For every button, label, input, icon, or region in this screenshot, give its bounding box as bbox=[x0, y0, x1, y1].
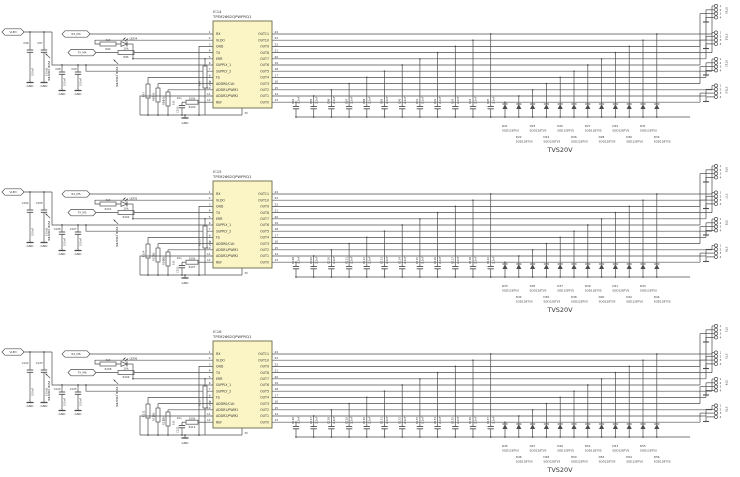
svg-text:C104: C104 bbox=[22, 201, 29, 205]
svg-text:OUT1: OUT1 bbox=[260, 414, 269, 418]
tvs-diodes: D21SOD128TVSD22SOD128TVSD23SOD128TVSD24S… bbox=[502, 33, 671, 154]
err-led-branch: 4k7R108LED6 bbox=[95, 357, 213, 380]
svg-text:4: 4 bbox=[720, 176, 722, 180]
svg-text:2: 2 bbox=[720, 381, 722, 385]
svg-text:4: 4 bbox=[720, 16, 722, 20]
svg-text:OUT7: OUT7 bbox=[260, 217, 269, 221]
svg-text:ERR: ERR bbox=[216, 57, 223, 61]
svg-text:2: 2 bbox=[720, 221, 722, 225]
svg-text:14: 14 bbox=[275, 92, 279, 96]
svg-text:3: 3 bbox=[720, 385, 722, 389]
svg-text:21: 21 bbox=[275, 49, 279, 53]
svg-text:2.2nF: 2.2nF bbox=[474, 256, 478, 264]
svg-text:15: 15 bbox=[275, 86, 279, 90]
svg-text:17: 17 bbox=[275, 73, 279, 77]
svg-text:2.2nF: 2.2nF bbox=[385, 96, 389, 104]
svg-text:OUT8: OUT8 bbox=[260, 51, 269, 55]
svg-text:D22: D22 bbox=[516, 135, 522, 139]
svg-text:C87: C87 bbox=[344, 98, 348, 104]
svg-text:3: 3 bbox=[720, 411, 722, 415]
svg-text:ST9: ST9 bbox=[725, 247, 729, 252]
svg-text:C111: C111 bbox=[344, 257, 348, 264]
svg-text:SOD128TVS: SOD128TVS bbox=[571, 300, 588, 304]
svg-text:25: 25 bbox=[245, 431, 249, 435]
svg-text:4: 4 bbox=[720, 202, 722, 206]
svg-text:GND: GND bbox=[182, 121, 190, 125]
svg-text:D26: D26 bbox=[571, 135, 577, 139]
svg-text:OUT6: OUT6 bbox=[260, 223, 269, 227]
svg-text:SOD128TVS: SOD128TVS bbox=[585, 449, 602, 453]
svg-text:R112: R112 bbox=[152, 414, 156, 421]
svg-text:OUT10: OUT10 bbox=[258, 358, 269, 362]
svg-text:D36: D36 bbox=[543, 295, 549, 299]
svg-text:OUT6: OUT6 bbox=[260, 383, 269, 387]
svg-text:SOD128TVS: SOD128TVS bbox=[612, 129, 629, 133]
svg-text:D56: D56 bbox=[654, 455, 660, 459]
svg-text:R107: R107 bbox=[189, 265, 196, 269]
svg-text:4: 4 bbox=[720, 255, 722, 259]
svg-text:SOD128TVS: SOD128TVS bbox=[502, 289, 519, 293]
svg-text:D43: D43 bbox=[640, 284, 646, 288]
svg-text:C124: C124 bbox=[54, 387, 61, 391]
svg-text:FS: FS bbox=[216, 236, 220, 240]
svg-text:2.2nF: 2.2nF bbox=[297, 96, 301, 104]
svg-text:SOD128TVS: SOD128TVS bbox=[543, 140, 560, 144]
svg-text:23: 23 bbox=[275, 196, 279, 200]
svg-text:OUT6: OUT6 bbox=[260, 63, 269, 67]
svg-text:C121: C121 bbox=[176, 426, 180, 433]
svg-text:3: 3 bbox=[720, 332, 722, 336]
output-bus bbox=[272, 166, 714, 262]
svg-text:C98: C98 bbox=[55, 67, 60, 71]
svg-text:GND: GND bbox=[41, 244, 49, 248]
svg-text:100nF: 100nF bbox=[78, 237, 82, 246]
svg-text:4: 4 bbox=[720, 389, 722, 393]
svg-text:10n: 10n bbox=[177, 96, 182, 100]
svg-text:13: 13 bbox=[275, 98, 279, 102]
svg-text:OUT0: OUT0 bbox=[260, 260, 269, 264]
svg-text:ST13: ST13 bbox=[725, 87, 729, 94]
svg-text:6: 6 bbox=[209, 61, 211, 65]
svg-text:VLDO: VLDO bbox=[216, 38, 225, 42]
svg-text:R113: R113 bbox=[162, 418, 166, 425]
svg-text:SOD128TVS: SOD128TVS bbox=[612, 289, 629, 293]
svg-text:GND: GND bbox=[216, 205, 224, 209]
svg-text:VLDO: VLDO bbox=[216, 358, 225, 362]
svg-text:4k7: 4k7 bbox=[105, 38, 110, 42]
svg-text:C95: C95 bbox=[486, 98, 490, 104]
svg-text:TVS20V: TVS20V bbox=[546, 306, 573, 314]
svg-text:SOD128TVS: SOD128TVS bbox=[654, 140, 671, 144]
svg-text:SOD128TVS: SOD128TVS bbox=[557, 129, 574, 133]
svg-text:D44: D44 bbox=[654, 295, 660, 299]
svg-text:OUT3: OUT3 bbox=[260, 402, 269, 406]
pwr-driver-label-b: PWR_DRIVER bbox=[114, 60, 120, 87]
svg-text:21: 21 bbox=[275, 369, 279, 373]
svg-text:ADDR2/PWM2: ADDR2/PWM2 bbox=[216, 94, 238, 98]
svg-text:19: 19 bbox=[275, 61, 279, 65]
block-IC14: IC14TPS92662QPWPRQ11RX2VLDO3GND4TX5ERR6S… bbox=[2, 4, 729, 154]
svg-text:GND: GND bbox=[27, 244, 35, 248]
svg-text:2: 2 bbox=[720, 194, 722, 198]
svg-text:RX_M5: RX_M5 bbox=[71, 192, 80, 196]
svg-text:100k: 100k bbox=[189, 416, 196, 420]
svg-text:17: 17 bbox=[275, 233, 279, 237]
svg-text:4: 4 bbox=[209, 49, 211, 53]
svg-text:PWR_DRIVER: PWR_DRIVER bbox=[47, 381, 51, 401]
svg-text:D42: D42 bbox=[626, 295, 632, 299]
output-bus bbox=[272, 326, 714, 422]
svg-text:D24: D24 bbox=[543, 135, 549, 139]
svg-text:ERR: ERR bbox=[216, 217, 223, 221]
svg-text:14: 14 bbox=[275, 412, 279, 416]
svg-text:C119: C119 bbox=[486, 257, 490, 264]
svg-text:OUT1: OUT1 bbox=[260, 94, 269, 98]
err-led-branch: 4k7R101LED5 bbox=[95, 197, 213, 220]
block-IC16: IC16TPS92662QPWPRQ11RX2VLDO3GND4TX5ERR6S… bbox=[2, 324, 729, 474]
svg-text:100nF: 100nF bbox=[30, 67, 34, 76]
svg-text:D55: D55 bbox=[640, 444, 646, 448]
svg-text:2.2nF: 2.2nF bbox=[314, 256, 318, 264]
svg-text:D47: D47 bbox=[530, 444, 536, 448]
svg-text:2.2nF: 2.2nF bbox=[332, 416, 336, 424]
svg-text:4: 4 bbox=[720, 42, 722, 46]
svg-text:2.2nF: 2.2nF bbox=[367, 416, 371, 424]
svg-text:2: 2 bbox=[209, 36, 211, 40]
svg-text:7: 7 bbox=[209, 227, 211, 231]
svg-text:C117: C117 bbox=[451, 257, 455, 264]
svg-text:2.2nF: 2.2nF bbox=[474, 96, 478, 104]
ic-symbol: IC16TPS92662QPWPRQ11RX2VLDO3GND4TX5ERR6S… bbox=[207, 329, 278, 435]
svg-text:21: 21 bbox=[275, 209, 279, 213]
svg-text:OUT10: OUT10 bbox=[258, 38, 269, 42]
svg-text:PWR_DRIVER: PWR_DRIVER bbox=[47, 61, 51, 81]
svg-text:SOD128TVS: SOD128TVS bbox=[530, 449, 547, 453]
svg-text:4k7: 4k7 bbox=[105, 358, 110, 362]
svg-text:PWR_DRIVER: PWR_DRIVER bbox=[115, 67, 119, 87]
svg-text:18: 18 bbox=[275, 227, 279, 231]
svg-text:C134: C134 bbox=[433, 417, 437, 424]
svg-text:2.2nF: 2.2nF bbox=[421, 416, 425, 424]
svg-text:1: 1 bbox=[720, 31, 722, 35]
svg-text:100nF: 100nF bbox=[78, 77, 82, 86]
svg-text:GND: GND bbox=[216, 365, 224, 369]
svg-text:2: 2 bbox=[720, 34, 722, 38]
gnd-rail: GND bbox=[140, 274, 242, 285]
svg-text:GND: GND bbox=[59, 92, 67, 96]
svg-text:1: 1 bbox=[720, 324, 722, 328]
svg-text:3: 3 bbox=[720, 65, 722, 69]
svg-text:SOD128TVS: SOD128TVS bbox=[516, 460, 533, 464]
svg-text:10k: 10k bbox=[172, 100, 176, 105]
svg-text:OUT2: OUT2 bbox=[260, 88, 269, 92]
svg-text:D49: D49 bbox=[557, 444, 563, 448]
svg-text:2.2nF: 2.2nF bbox=[438, 416, 442, 424]
output-caps: C842.2nFC852.2nFC862.2nFC872.2nFC882.2nF… bbox=[291, 33, 495, 118]
svg-text:REF: REF bbox=[216, 100, 222, 104]
svg-text:D52: D52 bbox=[599, 455, 605, 459]
svg-text:15: 15 bbox=[275, 406, 279, 410]
svg-text:FS: FS bbox=[216, 396, 220, 400]
svg-text:2.2nF: 2.2nF bbox=[314, 96, 318, 104]
svg-text:OUT7: OUT7 bbox=[260, 377, 269, 381]
svg-text:SOD128TVS: SOD128TVS bbox=[599, 140, 616, 144]
gnd-rail: GND bbox=[140, 434, 242, 445]
connector-ST4: 1234ST4 bbox=[703, 377, 729, 395]
svg-text:12: 12 bbox=[207, 258, 211, 262]
svg-text:19: 19 bbox=[275, 221, 279, 225]
svg-text:16: 16 bbox=[275, 400, 279, 404]
svg-text:ST5: ST5 bbox=[725, 407, 729, 412]
svg-text:SUPPLY_1: SUPPLY_1 bbox=[216, 383, 231, 387]
svg-text:GND: GND bbox=[59, 252, 67, 256]
svg-text:OUT10: OUT10 bbox=[258, 198, 269, 202]
svg-text:OUT9: OUT9 bbox=[260, 45, 269, 49]
svg-text:3: 3 bbox=[209, 42, 211, 46]
svg-text:FS: FS bbox=[216, 76, 220, 80]
svg-text:2: 2 bbox=[720, 61, 722, 65]
svg-text:OUT2: OUT2 bbox=[260, 248, 269, 252]
svg-text:GND: GND bbox=[182, 281, 190, 285]
svg-text:TX: TX bbox=[215, 211, 221, 215]
svg-text:OUT2: OUT2 bbox=[260, 408, 269, 412]
svg-text:1: 1 bbox=[720, 4, 722, 8]
svg-text:4: 4 bbox=[720, 229, 722, 233]
svg-text:3: 3 bbox=[209, 362, 211, 366]
svg-text:1: 1 bbox=[720, 57, 722, 61]
svg-text:ADDR1/PWM1: ADDR1/PWM1 bbox=[216, 88, 238, 92]
svg-text:1: 1 bbox=[209, 30, 211, 34]
tvs-diodes: D45SOD128TVSD46SOD128TVSD47SOD128TVSD48S… bbox=[502, 353, 671, 474]
svg-text:D53: D53 bbox=[612, 444, 618, 448]
tx-net: TX_M610kR109 bbox=[68, 367, 213, 379]
svg-text:C86: C86 bbox=[327, 98, 331, 104]
svg-text:SOD128TVS: SOD128TVS bbox=[599, 300, 616, 304]
svg-text:C85: C85 bbox=[309, 98, 313, 104]
svg-text:TX_M6: TX_M6 bbox=[77, 371, 87, 375]
svg-text:VLED: VLED bbox=[9, 30, 16, 34]
svg-text:C90: C90 bbox=[397, 98, 401, 104]
connector-ST11: 1234ST11 bbox=[703, 31, 729, 49]
svg-text:12: 12 bbox=[207, 418, 211, 422]
svg-text:3: 3 bbox=[720, 38, 722, 42]
svg-text:20: 20 bbox=[275, 215, 279, 219]
svg-text:4: 4 bbox=[720, 336, 722, 340]
svg-text:R105: R105 bbox=[152, 254, 156, 261]
svg-text:11: 11 bbox=[207, 412, 211, 416]
svg-text:C99: C99 bbox=[71, 67, 76, 71]
svg-text:SOD128TVS: SOD128TVS bbox=[654, 300, 671, 304]
svg-text:D48: D48 bbox=[543, 455, 549, 459]
svg-text:2: 2 bbox=[209, 196, 211, 200]
svg-text:SOD128TVS: SOD128TVS bbox=[502, 129, 519, 133]
svg-text:2: 2 bbox=[720, 247, 722, 251]
svg-text:TPS92662QPWPRQ1: TPS92662QPWPRQ1 bbox=[212, 334, 252, 339]
svg-text:2.2nF: 2.2nF bbox=[456, 96, 460, 104]
svg-text:LED5: LED5 bbox=[130, 197, 138, 201]
svg-text:D30: D30 bbox=[626, 135, 632, 139]
connector-ST6: 1234ST6 bbox=[703, 164, 729, 182]
svg-text:R102: R102 bbox=[123, 215, 130, 219]
svg-text:2: 2 bbox=[720, 168, 722, 172]
svg-text:OUT11: OUT11 bbox=[258, 352, 269, 356]
svg-text:2: 2 bbox=[720, 354, 722, 358]
svg-text:VLED: VLED bbox=[9, 350, 16, 354]
svg-text:SOD128TVS: SOD128TVS bbox=[626, 300, 643, 304]
svg-text:1: 1 bbox=[720, 191, 722, 195]
svg-text:TPS92662QPWPRQ1: TPS92662QPWPRQ1 bbox=[212, 174, 252, 179]
svg-text:D28: D28 bbox=[599, 135, 605, 139]
svg-text:2.2nF: 2.2nF bbox=[297, 256, 301, 264]
svg-text:SOD128TVS: SOD128TVS bbox=[626, 140, 643, 144]
svg-text:GND: GND bbox=[75, 92, 83, 96]
svg-text:PWR_DRIVER: PWR_DRIVER bbox=[47, 221, 51, 241]
svg-text:100k: 100k bbox=[189, 96, 196, 100]
svg-text:8: 8 bbox=[209, 73, 211, 77]
svg-text:ADDR2/PWM2: ADDR2/PWM2 bbox=[216, 254, 238, 258]
svg-text:OUT11: OUT11 bbox=[258, 32, 269, 36]
svg-text:SOD128TVS: SOD128TVS bbox=[571, 140, 588, 144]
connector-ST12: 1234ST12 bbox=[703, 57, 729, 75]
svg-text:2.2nF: 2.2nF bbox=[385, 416, 389, 424]
svg-text:6: 6 bbox=[209, 381, 211, 385]
svg-text:R100: R100 bbox=[189, 105, 196, 109]
svg-text:4: 4 bbox=[720, 95, 722, 99]
svg-text:SUPPLY_1: SUPPLY_1 bbox=[216, 63, 231, 67]
svg-text:10n: 10n bbox=[177, 416, 182, 420]
svg-text:1: 1 bbox=[720, 84, 722, 88]
svg-text:10k: 10k bbox=[123, 207, 129, 211]
output-caps: C1082.2nFC1092.2nFC1102.2nFC1112.2nFC112… bbox=[291, 193, 495, 278]
svg-text:OUT9: OUT9 bbox=[260, 205, 269, 209]
svg-text:ST11: ST11 bbox=[725, 34, 729, 41]
svg-text:2.2nF: 2.2nF bbox=[474, 416, 478, 424]
svg-text:REF: REF bbox=[216, 260, 222, 264]
supply-caps: GNDC98100nFGNDC99100nF bbox=[55, 64, 213, 96]
svg-text:C106: C106 bbox=[54, 227, 61, 231]
svg-text:ST6: ST6 bbox=[725, 167, 729, 172]
svg-text:R110: R110 bbox=[198, 399, 202, 406]
connector-ST5: 1234ST5 bbox=[703, 404, 729, 422]
svg-text:SUPPLY_1: SUPPLY_1 bbox=[216, 223, 231, 227]
svg-text:GND: GND bbox=[75, 412, 83, 416]
rx-net: RX_M4 bbox=[62, 31, 213, 37]
svg-text:2.2nF: 2.2nF bbox=[314, 416, 318, 424]
svg-text:13: 13 bbox=[275, 418, 279, 422]
svg-text:25: 25 bbox=[245, 271, 249, 275]
err-led-branch: 4k7R94LED4 bbox=[95, 37, 213, 60]
svg-text:C114: C114 bbox=[397, 257, 401, 264]
svg-text:C123: C123 bbox=[36, 361, 43, 365]
svg-text:C130: C130 bbox=[362, 417, 366, 424]
svg-text:10n: 10n bbox=[177, 256, 182, 260]
svg-text:SOD128TVS: SOD128TVS bbox=[640, 449, 657, 453]
svg-text:C115: C115 bbox=[415, 257, 419, 264]
svg-text:22: 22 bbox=[275, 362, 279, 366]
svg-text:100k: 100k bbox=[189, 256, 196, 260]
svg-text:R94: R94 bbox=[105, 47, 110, 51]
svg-text:C128: C128 bbox=[327, 417, 331, 424]
svg-text:OUT0: OUT0 bbox=[260, 100, 269, 104]
svg-text:2.2nF: 2.2nF bbox=[297, 416, 301, 424]
supply-caps: GNDC106100nFGNDC107100nF bbox=[54, 224, 213, 256]
svg-text:C88: C88 bbox=[362, 98, 366, 104]
schematic-canvas: IC14TPS92662QPWPRQ11RX2VLDO3GND4TX5ERR6S… bbox=[0, 0, 740, 477]
svg-text:23: 23 bbox=[275, 36, 279, 40]
svg-text:C108: C108 bbox=[291, 257, 295, 264]
svg-text:OUT5: OUT5 bbox=[260, 389, 269, 393]
svg-text:REF: REF bbox=[216, 420, 222, 424]
svg-text:C93: C93 bbox=[451, 98, 455, 104]
svg-text:PWR_DRIVER: PWR_DRIVER bbox=[115, 387, 119, 407]
svg-text:D54: D54 bbox=[626, 455, 632, 459]
ic-symbol: IC14TPS92662QPWPRQ11RX2VLDO3GND4TX5ERR6S… bbox=[207, 9, 278, 115]
svg-text:C113: C113 bbox=[380, 257, 384, 264]
svg-text:OUT8: OUT8 bbox=[260, 211, 269, 215]
svg-text:R103: R103 bbox=[198, 239, 202, 246]
svg-text:ERR: ERR bbox=[216, 377, 223, 381]
svg-text:D25: D25 bbox=[557, 124, 563, 128]
svg-text:2.2nF: 2.2nF bbox=[403, 416, 407, 424]
svg-text:C125: C125 bbox=[70, 387, 77, 391]
svg-text:D34: D34 bbox=[516, 295, 522, 299]
svg-text:4: 4 bbox=[209, 209, 211, 213]
svg-text:OUT9: OUT9 bbox=[260, 365, 269, 369]
svg-text:100nF: 100nF bbox=[30, 227, 34, 236]
svg-text:2.2nF: 2.2nF bbox=[350, 256, 354, 264]
svg-text:D40: D40 bbox=[599, 295, 605, 299]
svg-text:13: 13 bbox=[275, 258, 279, 262]
svg-text:OUT4: OUT4 bbox=[260, 396, 269, 400]
svg-text:VLED: VLED bbox=[9, 190, 16, 194]
svg-text:TX: TX bbox=[215, 51, 221, 55]
svg-text:OUT3: OUT3 bbox=[260, 242, 269, 246]
svg-text:2.2nF: 2.2nF bbox=[456, 416, 460, 424]
svg-text:OUT3: OUT3 bbox=[260, 82, 269, 86]
svg-text:C92: C92 bbox=[433, 98, 437, 104]
svg-text:SOD128TVS: SOD128TVS bbox=[640, 289, 657, 293]
svg-text:24: 24 bbox=[275, 190, 279, 194]
svg-text:17: 17 bbox=[275, 393, 279, 397]
svg-text:D45: D45 bbox=[502, 444, 508, 448]
svg-text:2.2nF: 2.2nF bbox=[491, 256, 495, 264]
ic-symbol: IC15TPS92662QPWPRQ11RX2VLDO3GND4TX5ERR6S… bbox=[207, 169, 278, 275]
svg-text:R109: R109 bbox=[123, 375, 130, 379]
svg-text:ADDR1/PWM1: ADDR1/PWM1 bbox=[216, 408, 238, 412]
svg-text:100nF: 100nF bbox=[78, 397, 82, 406]
svg-text:D31: D31 bbox=[640, 124, 646, 128]
svg-text:25: 25 bbox=[245, 111, 249, 115]
svg-text:GND: GND bbox=[59, 412, 67, 416]
svg-text:4: 4 bbox=[720, 362, 722, 366]
svg-text:8: 8 bbox=[209, 393, 211, 397]
svg-text:SOD128TVS: SOD128TVS bbox=[585, 289, 602, 293]
svg-text:C136: C136 bbox=[468, 417, 472, 424]
svg-text:OUT1: OUT1 bbox=[260, 254, 269, 258]
svg-text:12: 12 bbox=[207, 98, 211, 102]
svg-text:SOD128TVS: SOD128TVS bbox=[516, 140, 533, 144]
svg-text:GND: GND bbox=[41, 84, 49, 88]
svg-text:24: 24 bbox=[275, 350, 279, 354]
svg-text:14: 14 bbox=[275, 252, 279, 256]
tx-net: TX_M410kR95 bbox=[68, 47, 213, 59]
svg-text:10k: 10k bbox=[172, 420, 176, 425]
svg-text:2.2nF: 2.2nF bbox=[350, 416, 354, 424]
svg-text:GND: GND bbox=[27, 404, 35, 408]
svg-text:SOD128TVS: SOD128TVS bbox=[571, 460, 588, 464]
svg-text:ADDR1/PWM1: ADDR1/PWM1 bbox=[216, 248, 238, 252]
svg-text:SOD128TVS: SOD128TVS bbox=[502, 449, 519, 453]
